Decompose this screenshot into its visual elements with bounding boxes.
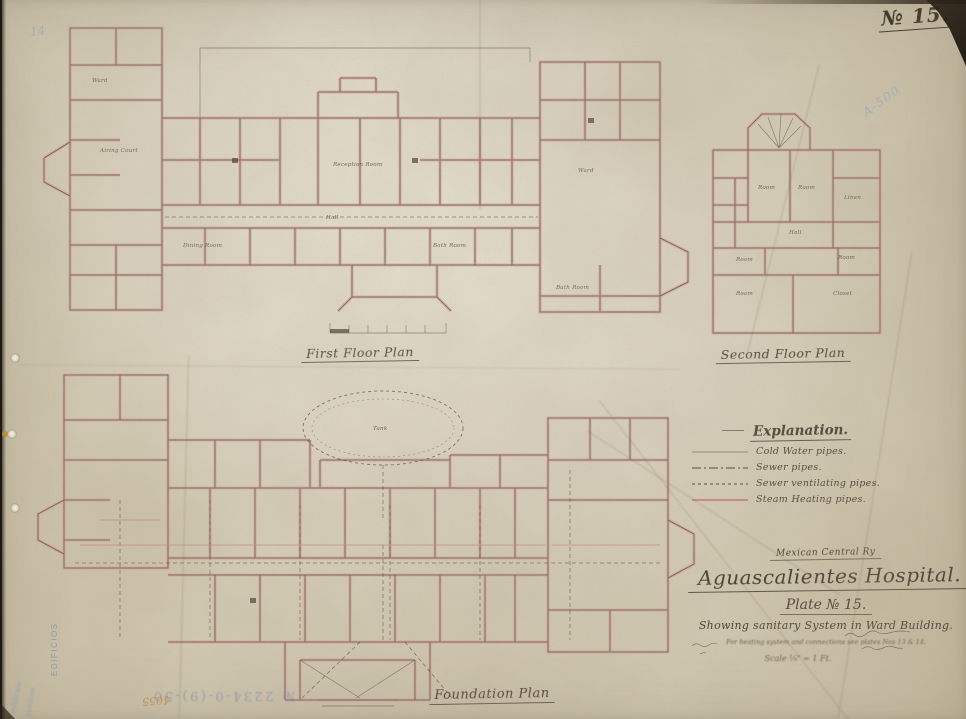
archive-scribble: 4055 <box>142 693 171 708</box>
scale-note: Scale ⅛" = 1 Ft. <box>660 654 936 663</box>
legend-title: Explanation. <box>750 422 851 442</box>
room-label: Ward <box>578 168 594 174</box>
line-sample-dashed <box>692 481 748 487</box>
legend-item: Cold Water pipes. <box>692 446 932 457</box>
plate-number: № 15. <box>877 1 953 30</box>
legend-item-label: Cold Water pipes. <box>756 446 847 457</box>
room-label: Closet <box>833 291 853 297</box>
legend-item-label: Sewer pipes. <box>756 462 822 473</box>
legend-item: Sewer pipes. <box>692 462 932 473</box>
room-label: Hall <box>788 230 802 236</box>
room-label: Room <box>797 185 815 191</box>
chimney-mark <box>250 598 256 603</box>
gold-grommet <box>2 431 8 437</box>
chimney-mark <box>232 158 238 163</box>
legend-item: Sewer ventilating pipes. <box>692 478 932 489</box>
chimney-mark <box>588 118 594 123</box>
margin-vertical-text: EDIFICIOS <box>50 622 59 676</box>
room-label: Dining Room <box>182 243 222 249</box>
plate-label: Plate № 15. <box>780 597 873 615</box>
line-sample-thin-solid <box>692 449 748 455</box>
blueprint-sheet: Airing Court Reception Room Hall Ward Ba… <box>0 0 966 719</box>
tank-label: Tank <box>373 426 388 432</box>
room-label: Linen <box>843 195 861 201</box>
scale-bar-block <box>330 329 349 333</box>
legend-item: Steam Heating pipes. <box>692 494 932 505</box>
binder-hole <box>10 353 20 363</box>
foundation-plan-title: Foundation Plan <box>429 686 554 705</box>
legend: Explanation. Cold Water pipes. Sewer pip… <box>686 420 932 505</box>
room-label: Bath Room <box>432 243 466 249</box>
reference-note: For heating system and connections see p… <box>688 638 964 646</box>
drawing-subtitle: Showing sanitary System in Ward Building… <box>688 619 964 632</box>
first-floor-plan-title: First Floor Plan <box>301 344 419 363</box>
second-floor-plan-walls-color <box>713 114 880 333</box>
pencil-note: 14 <box>29 23 46 39</box>
room-label: Ward <box>92 78 108 84</box>
railway-name: Mexican Central Ry <box>770 547 881 561</box>
legend-item-label: Steam Heating pipes. <box>756 494 866 505</box>
legend-dash-line <box>722 430 744 431</box>
line-sample-dash-dot <box>692 465 748 471</box>
room-label: Hall <box>325 215 339 221</box>
second-floor-plan-title: Second Floor Plan <box>716 345 851 364</box>
drawing-title: Aguascalientes Hospital. <box>688 562 966 593</box>
foundation-plan-walls-color <box>38 375 694 700</box>
room-label: Airing Court <box>99 148 138 154</box>
legend-item-label: Sewer ventilating pipes. <box>756 478 880 489</box>
room-label: Bath Room <box>555 285 589 291</box>
room-label: Reception Room <box>332 162 382 168</box>
room-label: Room <box>735 257 753 263</box>
archive-stamp: № 2234-0-(9)-50 <box>100 688 295 703</box>
line-sample-solid-pink <box>692 497 748 503</box>
room-label: Room <box>837 255 855 261</box>
binder-hole <box>7 429 17 439</box>
chimney-mark <box>412 158 418 163</box>
room-label: Room <box>735 291 753 297</box>
room-label: Room <box>757 185 775 191</box>
title-block: Mexican Central Ry Aguascalientes Hospit… <box>688 540 964 663</box>
binder-hole <box>10 503 20 513</box>
